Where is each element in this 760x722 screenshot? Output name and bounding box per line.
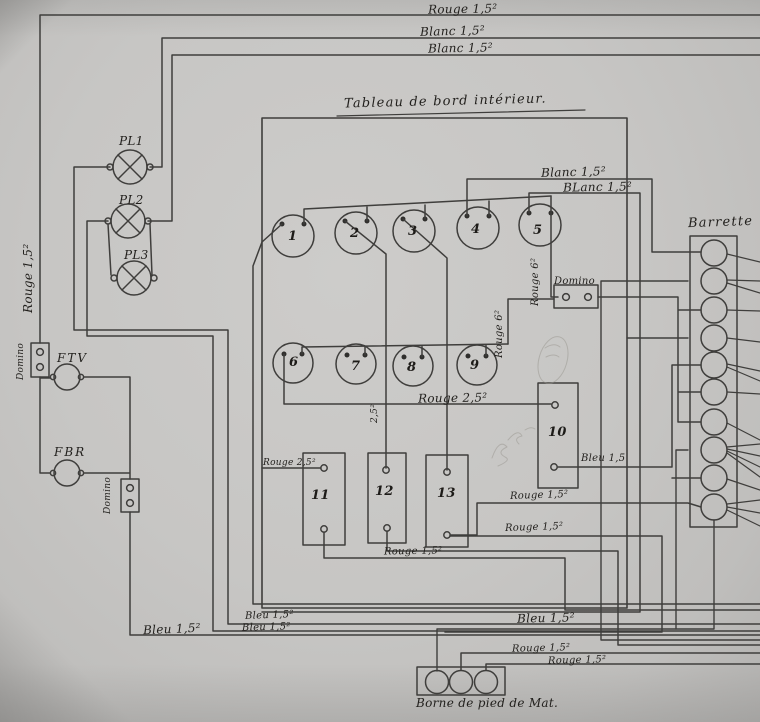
wire-label-top-rouge: Rouge 1,5²	[428, 2, 498, 15]
scanned-wiring-diagram: Rouge 1,5² Blanc 1,5² Blanc 1,5² Rouge 1…	[0, 0, 760, 722]
switch-7-number: 7	[351, 360, 360, 373]
fuse-fbr-symbol	[50, 460, 83, 486]
domino-c-label: Domino	[554, 277, 595, 287]
fuse-ftv-symbol	[50, 364, 83, 390]
switch-1-number: 1	[288, 230, 297, 243]
wire-label-bleu15-left-3: Bleu 1,5²	[143, 622, 201, 637]
fuse-fbr-label: FBR	[54, 446, 86, 458]
wire-label-left-rouge-vertical: Rouge 1,5²	[22, 201, 34, 313]
lamp-pl2-label: PL2	[119, 194, 144, 206]
wire-label-rouge25-main: Rouge 2,5²	[418, 391, 488, 404]
wire-label-rouge25-block11: Rouge 2,5²	[263, 459, 316, 468]
wire-label-bleu15-center: Bleu 1,5²	[517, 611, 575, 625]
domino-b-symbol	[121, 479, 139, 512]
wire-label-bleu15-block10: Bleu 1,5	[581, 454, 625, 464]
lamp-pl1-symbol	[107, 150, 153, 184]
wire-fuse-loop	[40, 377, 760, 635]
block-11-number: 11	[311, 489, 330, 502]
domino-a-symbol	[31, 343, 49, 377]
wire-label-rouge15-mid2: Rouge 1,5²	[505, 522, 564, 534]
block-12-number: 12	[375, 485, 394, 498]
wire-label-bleu15-left-1: Bleu 1,5²	[245, 610, 294, 622]
lamp-pl3-symbol	[111, 261, 157, 295]
switch-8-number: 8	[407, 361, 416, 374]
lamp-pl2-symbol	[105, 204, 151, 238]
wire-label-rouge15-mid1: Rouge 1,5²	[510, 490, 569, 502]
wire-label-rouge15-borne-1: Rouge 1,5²	[512, 643, 571, 655]
domino-b-label: Domino	[104, 476, 113, 514]
wire-label-rouge6-switch5: Rouge 6²	[531, 244, 541, 306]
wire-label-25-vertical: 2,5²	[371, 381, 380, 423]
fuse-ftv-label: FTV	[57, 352, 88, 364]
wire-label-top-blanc-2: Blanc 1,5²	[428, 41, 493, 54]
switch-9-number: 9	[470, 359, 479, 372]
wire-label-rouge15-borne-2: Rouge 1,5²	[548, 655, 607, 667]
wire-label-blanc-right-2: BLanc 1,5²	[563, 180, 632, 193]
switch-6-number: 6	[289, 356, 298, 369]
switch-3-number: 3	[408, 225, 417, 238]
switch-5-number: 5	[533, 224, 542, 237]
wire-label-blanc-right-1: Blanc 1,5²	[541, 165, 606, 179]
wire-label-rouge6-switch9: Rouge 6²	[495, 296, 505, 358]
wire-label-bleu15-left-2: Bleu 1,5²	[242, 622, 291, 633]
switch-4-number: 4	[471, 223, 480, 236]
domino-a-label: Domino	[17, 342, 26, 380]
switch-2-number: 2	[350, 227, 359, 240]
switch-row-1	[253, 179, 760, 612]
block-13-number: 13	[437, 487, 456, 500]
switch-row-2	[273, 299, 554, 404]
block-13-symbol	[426, 455, 701, 632]
barrette-label: Barrette	[688, 215, 754, 230]
lamp-pl1-label: PL1	[119, 135, 144, 147]
wire-label-rouge15-bottom-blocks: Rouge 1,5²	[384, 546, 443, 557]
lamp-pl3-label: PL3	[124, 249, 149, 261]
borne-label: Borne de pied de Mat.	[416, 697, 558, 709]
wire-label-top-blanc-1: Blanc 1,5²	[420, 24, 485, 38]
block-10-number: 10	[548, 426, 567, 439]
wire-barrette-right-fans	[727, 254, 760, 526]
